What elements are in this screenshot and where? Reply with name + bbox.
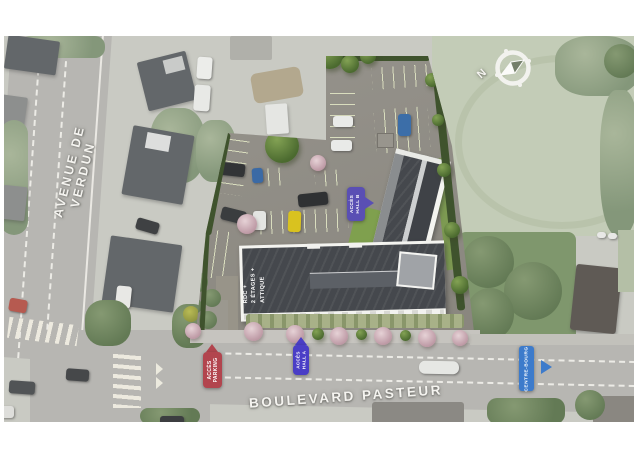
tree [360,48,376,64]
road-arrow [156,377,163,389]
shrub [312,328,324,340]
tree-blossom [185,323,201,339]
parked-car [597,232,606,238]
access-parking-pill: ACCÈS PARKING [203,352,222,388]
car-white [333,116,353,127]
parking-row [190,227,236,280]
car-yellow [288,211,302,232]
tree-blossom [237,214,257,234]
house [570,264,623,334]
parking-row [314,169,346,187]
roof-box [349,242,362,247]
car-dark [66,368,90,382]
shrub [400,330,411,341]
centre-bourg-pill: CENTRE-BOURG [519,346,534,391]
access-hall-b-marker: ACCÈS HALL B [347,187,377,221]
washed-houses [372,402,464,422]
hedge-corner [85,300,131,346]
tree [432,114,444,126]
tree-clump [604,44,634,78]
tree [451,276,469,294]
arrow-up-icon [206,344,218,352]
tree-blossom [452,330,468,346]
house-lawn [618,230,634,292]
tree [317,43,343,69]
access-hall-a-pill: ACCÈS HALL A [293,345,309,375]
car-blue [251,168,263,184]
access-parking-marker: ACCÈS PARKING [202,344,226,390]
centre-bourg-text: CENTRE-BOURG [524,346,529,391]
compass-icon [493,48,533,88]
arrow-right-icon [541,360,552,374]
access-hall-a-line2: HALL A [301,351,307,369]
tree [444,222,460,238]
dirt-patch [250,66,304,104]
tree [437,163,451,177]
building-label-text: RDC + 2 ÉTAGES + ATTIQUE [241,267,267,303]
development-site: RDC + 2 ÉTAGES + ATTIQUE [190,50,476,338]
tree-blossom [374,327,392,345]
tree-blossom [310,155,326,171]
house [4,36,60,75]
road-arrow [156,363,163,375]
tree-clump [575,390,605,420]
tree-clump [600,90,634,235]
car-blue [398,114,411,136]
washed-buildings [230,36,272,60]
access-hall-b-text: ACCÈS HALL B [350,194,362,213]
penthouse [396,251,437,289]
truck [196,57,212,80]
access-hall-a-marker: ACCÈS HALL A [293,337,313,377]
car-dark [160,416,184,422]
tree-clump [487,398,565,422]
roof-wing [310,270,402,288]
access-hall-a-text: ACCÈS HALL A [295,351,306,369]
roof-box [307,244,320,249]
access-hall-a-line1: ACCÈS [295,351,301,369]
sidewalk [470,334,634,345]
bus [419,361,459,375]
compass [493,48,533,88]
car-dark [9,380,36,395]
building-label: RDC + 2 ÉTAGES + ATTIQUE [239,257,268,314]
crosswalk [113,352,141,408]
white-canopy [265,103,289,134]
parked-car [608,233,617,239]
truck [193,84,211,111]
arrow-right-icon [365,197,374,209]
car-dark [135,217,160,235]
car-dark [297,191,328,207]
access-hall-b-pill: ACCÈS HALL B [347,187,365,221]
arrow-up-icon [295,337,307,345]
car-white [331,140,352,151]
access-parking-text: ACCÈS PARKING [206,358,219,383]
building-label-line2: 2 ÉTAGES + [249,267,258,303]
garden-strip [246,314,464,328]
tree-blossom [244,322,263,341]
tree [341,55,359,73]
aerial-map: RDC + 2 ÉTAGES + ATTIQUE [4,36,634,422]
access-hall-b-line2: HALL B [356,194,362,213]
tree-blossom [330,327,348,345]
car-white [4,406,14,418]
house [4,185,28,221]
building-label-line3: ATTIQUE [258,267,267,303]
utility-box [377,133,394,148]
access-parking-line2: PARKING [213,358,219,383]
access-parking-line1: ACCÈS [206,358,212,383]
parking-row [371,64,428,90]
site-plan-page: RDC + 2 ÉTAGES + ATTIQUE [0,0,640,470]
tree-blossom [418,329,436,347]
building-a: RDC + 2 ÉTAGES + ATTIQUE [239,240,446,321]
olive-bush [183,306,199,322]
shrub [356,329,367,340]
